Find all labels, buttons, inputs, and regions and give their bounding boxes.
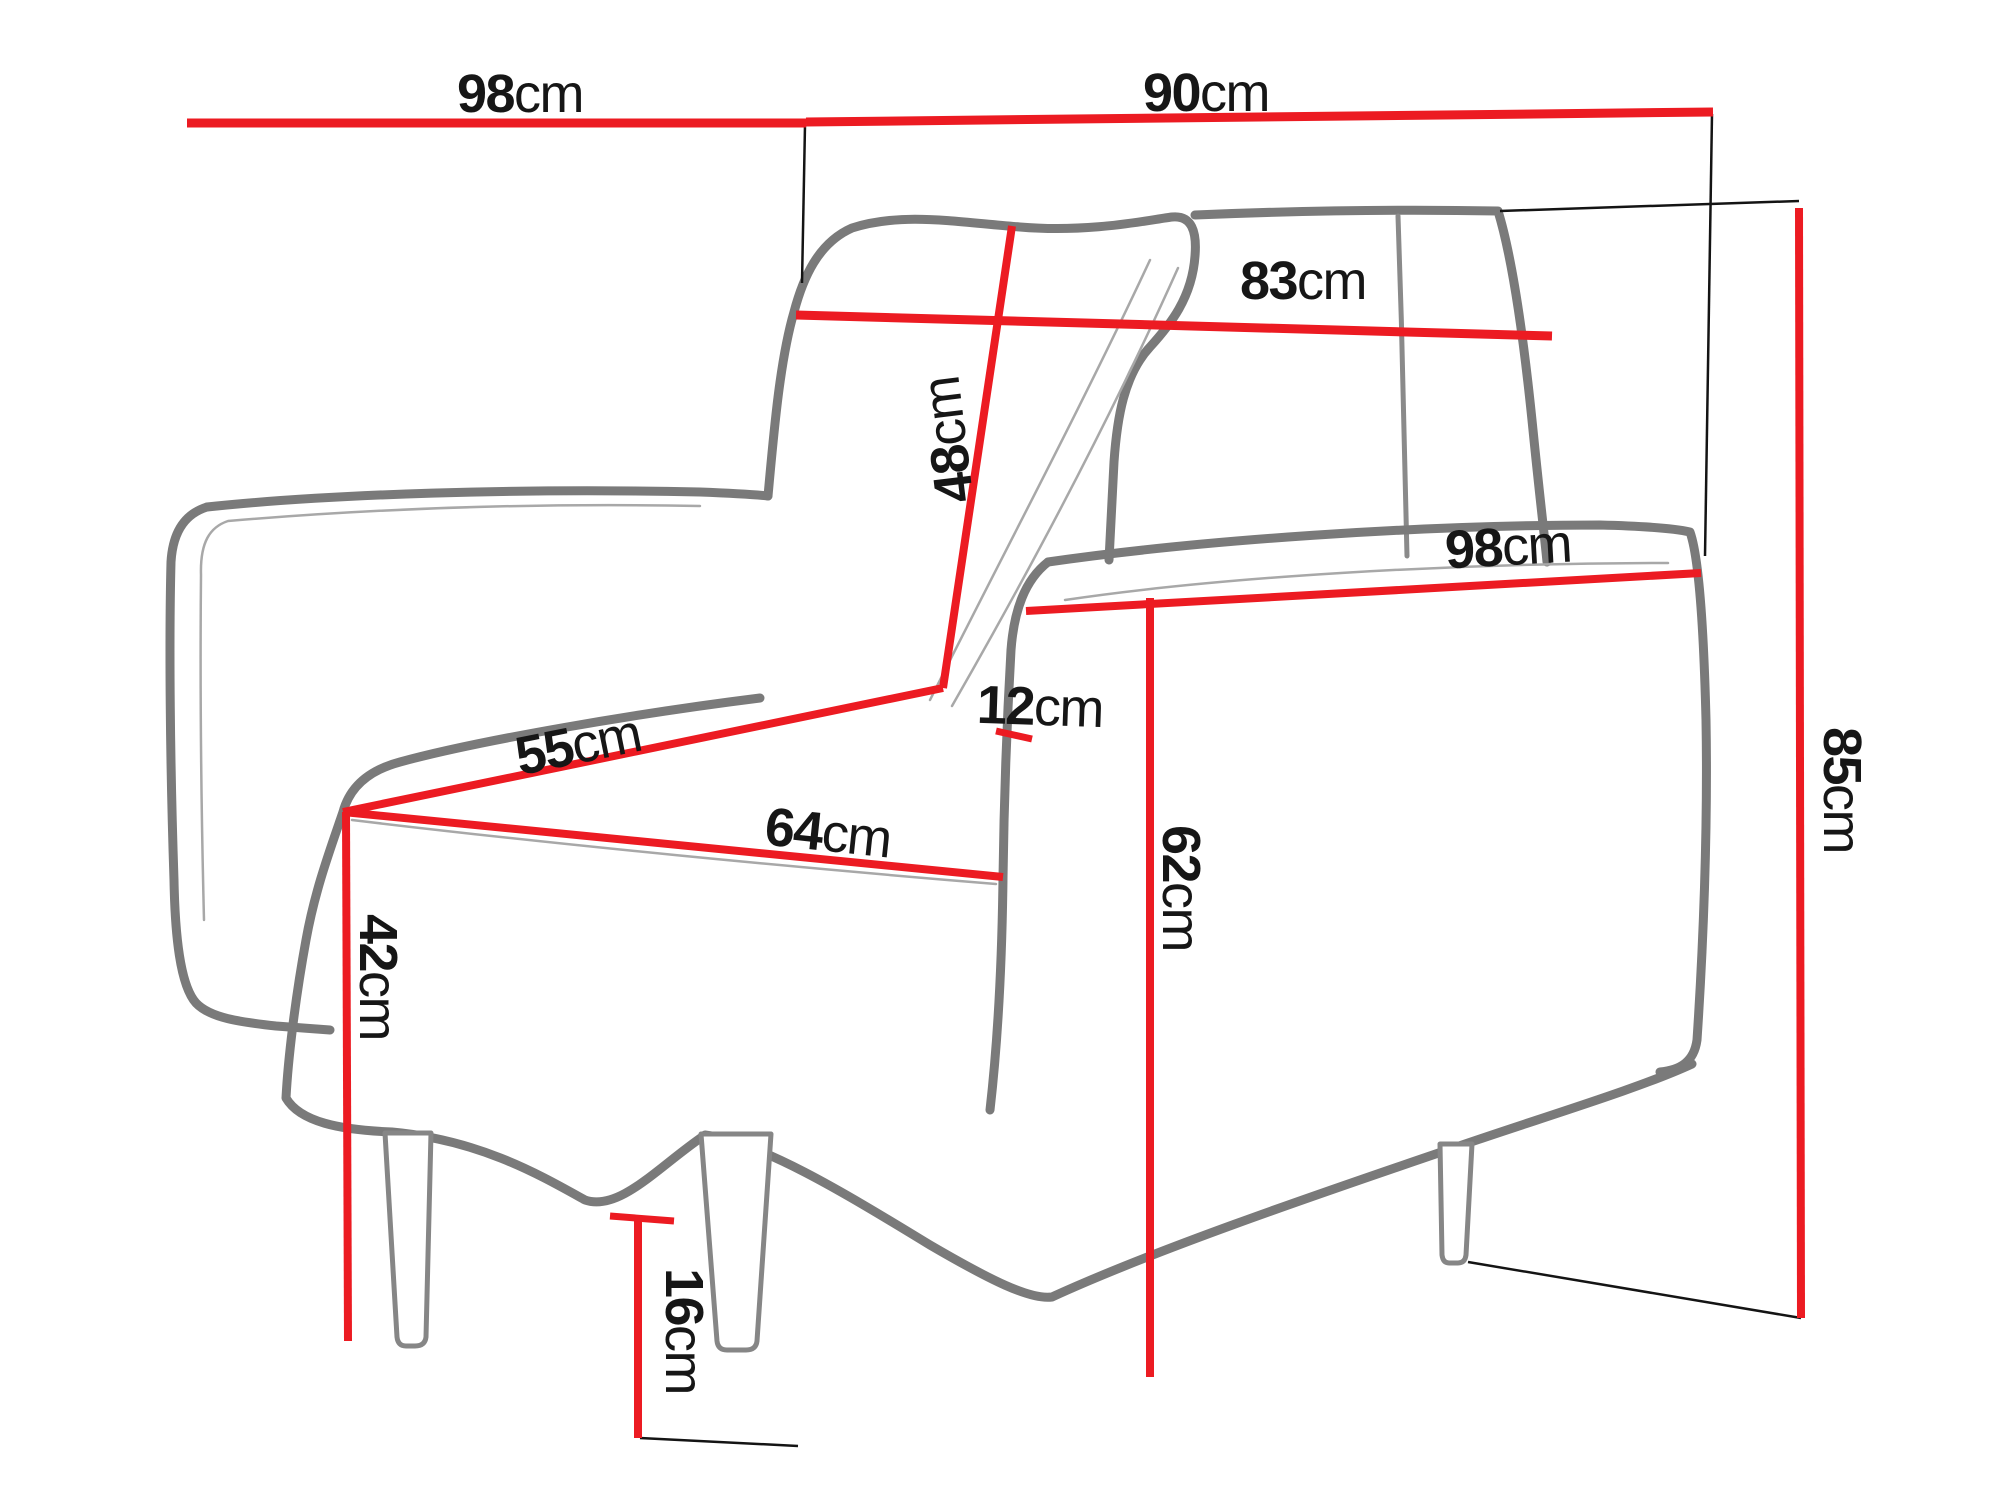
dim-unit: cm [1812, 784, 1872, 853]
dim-value: 90 [1143, 63, 1200, 123]
dim-label-top-width-right: 90cm [1143, 66, 1269, 120]
seat-front-seam [352, 820, 996, 884]
extension-line-floor-16 [640, 1438, 798, 1446]
dim-value: 12 [976, 675, 1035, 737]
dim-tick-16 [610, 1216, 674, 1221]
dim-unit: cm [1151, 882, 1211, 951]
dim-value: 98 [457, 64, 514, 124]
dim-value: 98 [1443, 517, 1503, 580]
dim-line-64-seat-width [343, 812, 1003, 877]
dim-label-overall-height: 85cm [1815, 727, 1869, 853]
armchair-line-art [0, 0, 2000, 1500]
dim-line-42-seat-height [346, 812, 348, 1341]
extension-line-right-top [1705, 114, 1712, 556]
dim-unit: cm [348, 971, 408, 1040]
dim-label-leg-height: 16cm [657, 1268, 711, 1394]
dim-value: 64 [762, 797, 825, 863]
right-back-cushion-edge [1398, 216, 1407, 556]
dim-value: 62 [1151, 825, 1211, 882]
dim-unit: cm [1500, 514, 1572, 578]
dim-unit: cm [819, 803, 894, 870]
dim-unit: cm [1297, 251, 1366, 311]
armrest-front-edge [990, 562, 1048, 1110]
dim-label-armrest-height: 62cm [1154, 825, 1208, 951]
extension-line-top-divider [802, 125, 805, 283]
front-left-leg [385, 1133, 431, 1346]
dim-unit: cm [1033, 677, 1104, 739]
dim-label-backrest-height: 48cm [914, 374, 983, 506]
extension-line-back-to-85 [1500, 201, 1799, 211]
dim-value: 16 [654, 1268, 714, 1325]
seat-and-base-outline [286, 698, 1692, 1297]
dim-label-armrest-thickness: 12cm [976, 678, 1104, 736]
rear-right-leg [1440, 1144, 1472, 1263]
dim-value: 42 [348, 914, 408, 971]
dim-unit: cm [514, 64, 583, 124]
backrest-outline [768, 217, 1195, 560]
dim-unit: cm [1200, 63, 1269, 123]
dim-label-seat-width-front: 64cm [762, 800, 893, 867]
dim-line-85-total-height [1799, 208, 1801, 1318]
dim-value: 83 [1240, 251, 1297, 311]
dim-label-backrest-width: 83cm [1240, 254, 1366, 308]
armchair-dimension-diagram: 98cm 90cm 83cm 48cm 55cm 12cm 64cm 98cm … [0, 0, 2000, 1500]
dim-value: 85 [1812, 727, 1872, 784]
dim-label-seat-height: 42cm [351, 914, 405, 1040]
dim-unit: cm [911, 374, 979, 450]
dim-label-side-length: 98cm [1444, 517, 1573, 578]
dim-unit: cm [654, 1325, 714, 1394]
dim-label-back-width-top: 98cm [457, 67, 583, 121]
extension-line-leg-to-85 [1468, 1262, 1801, 1318]
dim-value: 48 [919, 442, 986, 506]
